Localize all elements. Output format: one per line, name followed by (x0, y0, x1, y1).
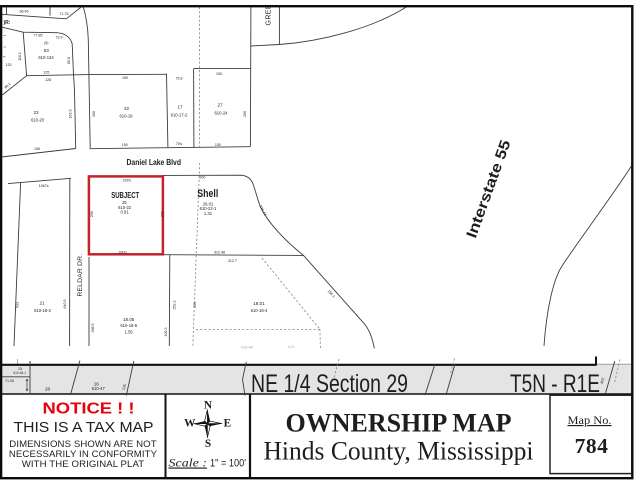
svg-text:610-47: 610-47 (92, 386, 106, 391)
svg-text:Map No.: Map No. (568, 415, 612, 427)
svg-text:128: 128 (45, 78, 51, 82)
svg-text:Scale :: Scale : (169, 458, 208, 470)
svg-text:610-18-4: 610-18-4 (251, 308, 268, 313)
svg-text:WITH THE ORIGINAL PLAT: WITH THE ORIGINAL PLAT (22, 459, 145, 470)
svg-text:NOTICE ! !: NOTICE ! ! (43, 401, 135, 418)
svg-text:THIS IS A TAX MAP: THIS IS A TAX MAP (14, 419, 154, 436)
svg-text:125: 125 (43, 70, 49, 74)
svg-text:295: 295 (193, 302, 197, 308)
svg-text:OWNERSHIP MAP: OWNERSHIP MAP (286, 408, 512, 438)
svg-text:610-46-1: 610-46-1 (13, 371, 26, 375)
svg-text:133: 133 (6, 63, 12, 67)
svg-text:200: 200 (161, 211, 165, 217)
svg-text:252.2: 252.2 (172, 301, 176, 310)
svg-text:163.9: 163.9 (69, 110, 73, 119)
svg-text:Daniel Lake Blvd: Daniel Lake Blvd (127, 158, 182, 167)
svg-text:75's: 75's (176, 142, 183, 146)
svg-text:312.7: 312.7 (228, 259, 237, 263)
svg-text:73.9: 73.9 (56, 36, 63, 40)
svg-text:Hinds County, Mississippi: Hinds County, Mississippi (264, 437, 534, 466)
svg-text:77.85: 77.85 (34, 34, 43, 38)
svg-text:610: 610 (288, 345, 294, 349)
svg-text:200's: 200's (118, 250, 127, 254)
svg-text:400.3: 400.3 (164, 328, 168, 337)
svg-text:RELDAR DR.: RELDAR DR. (77, 254, 84, 297)
svg-text:1067s: 1067s (39, 184, 49, 188)
svg-text:27: 27 (217, 103, 223, 108)
svg-text:17: 17 (177, 105, 183, 110)
svg-text:640.5: 640.5 (63, 300, 67, 309)
svg-text:150: 150 (122, 76, 128, 80)
svg-text:312.48: 312.48 (214, 251, 225, 255)
svg-text:71.05: 71.05 (5, 379, 14, 383)
svg-text:18.01: 18.01 (253, 301, 265, 306)
svg-text:200: 200 (199, 176, 205, 180)
svg-text:23: 23 (33, 110, 39, 115)
svg-text:21: 21 (39, 301, 45, 306)
svg-text:S: S (205, 438, 211, 450)
svg-text:N: N (204, 400, 213, 412)
svg-text:398.5: 398.5 (91, 324, 95, 333)
svg-text:610-20: 610-20 (31, 118, 45, 123)
svg-text:610-48: 610-48 (241, 346, 252, 350)
svg-text:1.55: 1.55 (125, 330, 134, 335)
svg-text:784: 784 (575, 434, 609, 458)
svg-text:200: 200 (243, 111, 247, 117)
svg-text:W: W (184, 417, 196, 429)
svg-text:28: 28 (45, 387, 51, 392)
svg-text:18.05: 18.05 (123, 317, 135, 322)
svg-text:155: 155 (34, 147, 40, 151)
svg-text:Shell: Shell (197, 188, 218, 200)
svg-text:150: 150 (122, 143, 128, 147)
svg-text:610-134: 610-134 (38, 55, 54, 60)
svg-text:22: 22 (124, 106, 130, 111)
svg-text:)R:: )R: (4, 20, 11, 26)
svg-text:116.1: 116.1 (18, 52, 22, 61)
svg-text:T5N - R1E: T5N - R1E (510, 370, 600, 398)
svg-text:610-19: 610-19 (119, 114, 133, 119)
svg-text:150: 150 (215, 143, 221, 147)
svg-text:0.91: 0.91 (121, 210, 130, 215)
svg-text:200's: 200's (123, 178, 132, 182)
svg-text:71.76: 71.76 (60, 12, 69, 16)
svg-text:1.31: 1.31 (204, 211, 213, 216)
svg-text:610-24: 610-24 (214, 111, 228, 116)
svg-text:53: 53 (44, 48, 50, 53)
svg-text:150: 150 (216, 72, 222, 76)
svg-text:E: E (224, 417, 232, 429)
svg-text:SUBJECT: SUBJECT (111, 190, 140, 200)
svg-text:610-17-2: 610-17-2 (171, 113, 188, 118)
svg-text:96.45: 96.45 (20, 10, 29, 14)
svg-text:610-18-6: 610-18-6 (120, 323, 137, 328)
svg-text:75.8: 75.8 (176, 76, 183, 80)
svg-text:85.8: 85.8 (67, 57, 71, 64)
svg-text:610-18-3: 610-18-3 (34, 308, 51, 313)
svg-text:160: 160 (92, 111, 96, 117)
svg-text:1" = 100': 1" = 100' (210, 458, 246, 470)
svg-text:200: 200 (90, 211, 94, 217)
svg-text:(5): (5) (44, 41, 48, 45)
svg-text:NE 1/4 Section 29: NE 1/4 Section 29 (251, 370, 408, 398)
svg-text:533: 533 (16, 302, 20, 308)
